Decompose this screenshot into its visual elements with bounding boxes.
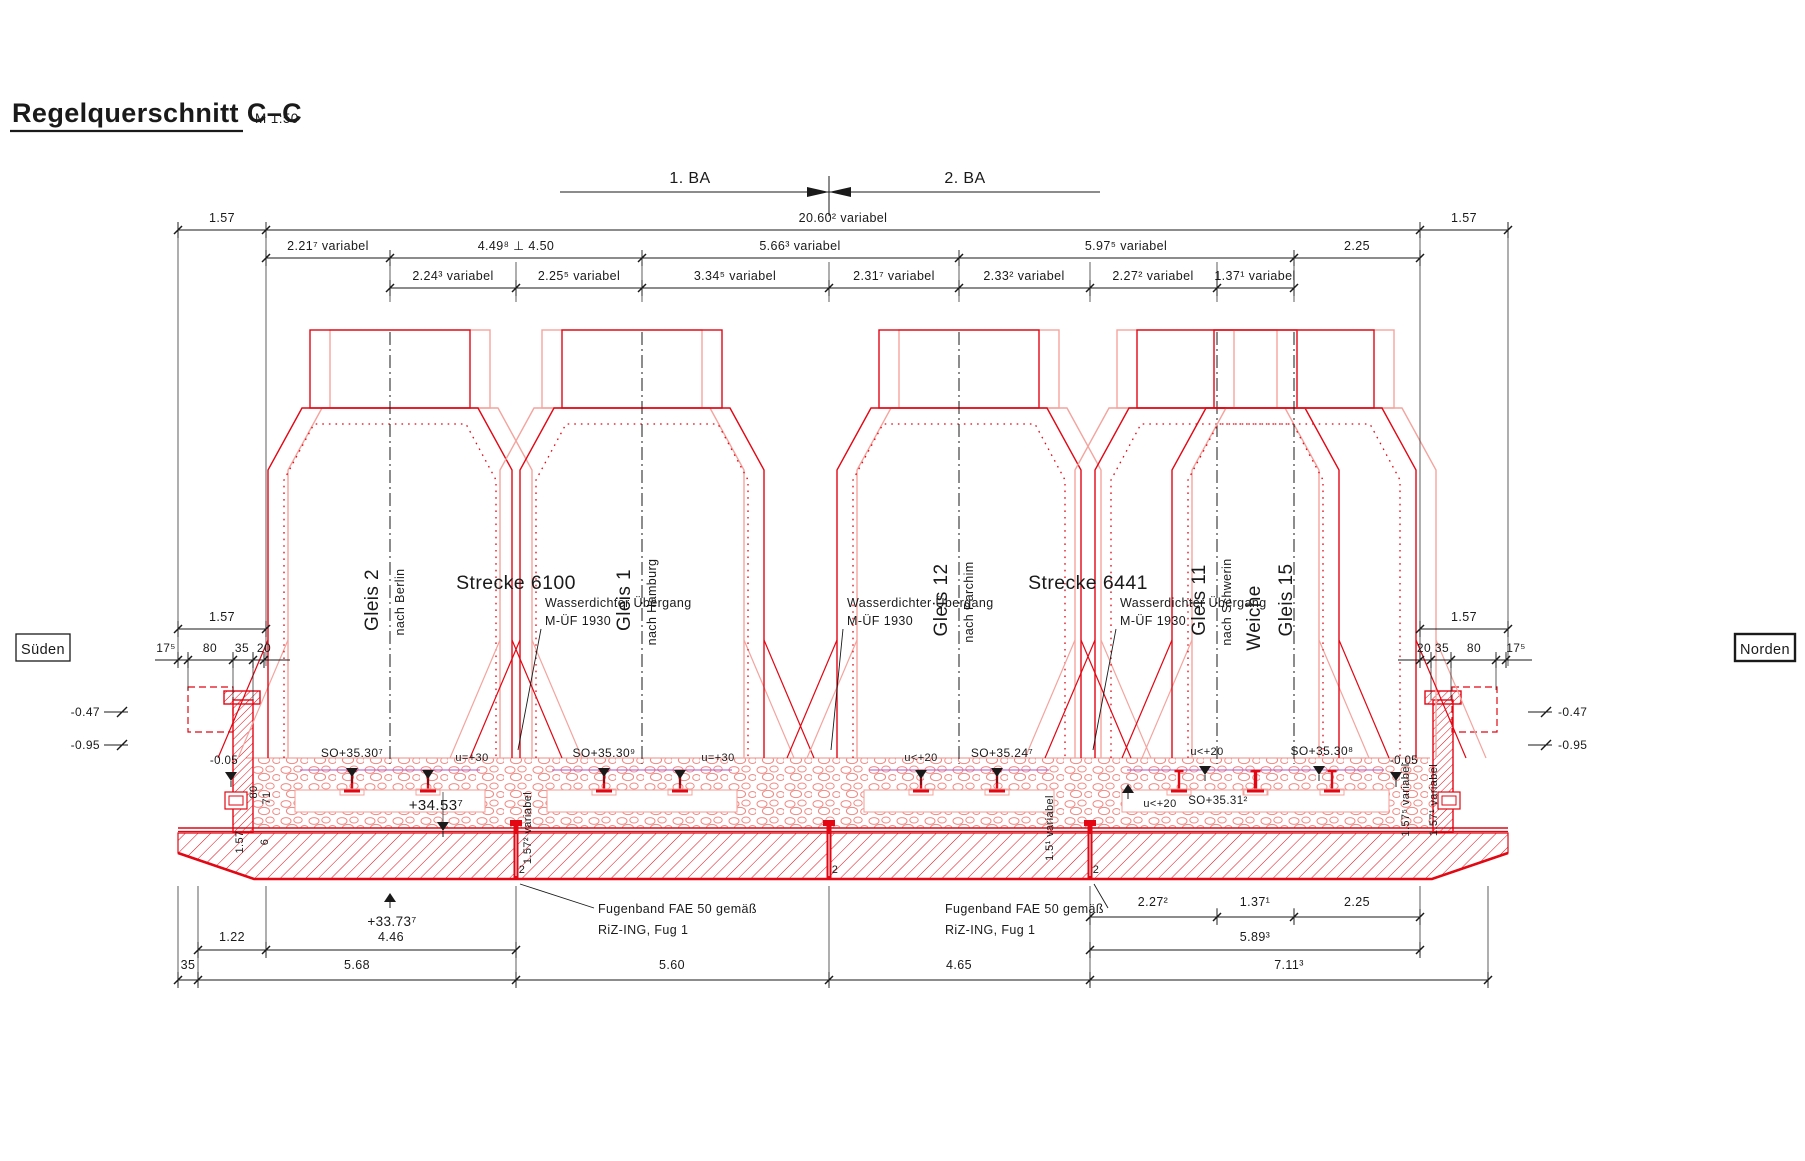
- waterproof-note: M-ÜF 1930: [1120, 614, 1186, 628]
- slab-hatched-body: [178, 833, 1508, 879]
- sleeper-band: [864, 790, 1054, 812]
- track-direction-label: nach Berlin: [393, 569, 407, 636]
- slab-level-label: +33.73⁷: [367, 914, 416, 929]
- dim-label: 2.25: [1344, 239, 1370, 253]
- cross-section-drawing: Regelquerschnitt C–CM 1:501. BA2. BA1.57…: [0, 0, 1805, 1161]
- dim-label: 20.60² variabel: [799, 211, 888, 225]
- gauge-variant-outline: [807, 330, 1151, 758]
- height-dim-label: 1.57: [234, 830, 246, 853]
- drawing-scale: M 1:50: [255, 111, 299, 126]
- phase-arrow-left: [807, 187, 829, 197]
- dim-label: 2.25: [1344, 895, 1370, 909]
- waterproof-note: M-ÜF 1930: [847, 614, 913, 628]
- dim-label: 2.21⁷ variabel: [287, 239, 369, 253]
- line-number-label: Strecke 6441: [1028, 572, 1148, 594]
- dim-label: 17⁵: [156, 641, 176, 655]
- clearance-gauges: [218, 330, 1486, 764]
- gauge-variant-outline: [1025, 330, 1369, 758]
- joint-tape-note: Fugenband FAE 50 gemäß: [598, 902, 757, 916]
- cant-label: u=+30: [455, 752, 488, 764]
- level-label: -0.05: [210, 755, 238, 767]
- rail-level-label: SO+35.31²: [1188, 795, 1248, 807]
- cant-label: u<+20: [1190, 746, 1223, 758]
- track-name-label: Gleis 11: [1189, 564, 1210, 636]
- joint-width-label: 2: [1093, 864, 1100, 876]
- dim-label: 1.37¹ variabel: [1214, 269, 1295, 283]
- phase-2-label: 2. BA: [944, 170, 985, 187]
- track-direction-label: nach Parchim: [962, 561, 976, 642]
- rail-level-label: SO+35.30⁷: [321, 746, 383, 760]
- dim-label: 2.31⁷ variabel: [853, 269, 935, 283]
- cant-label: u<+20: [1143, 798, 1176, 810]
- joint-tape-note: RiZ-ING, Fug 1: [945, 923, 1035, 937]
- track-direction-label: nach Hamburg: [645, 559, 659, 646]
- drawing-sheet: Regelquerschnitt C–CM 1:501. BA2. BA1.57…: [0, 0, 1805, 1161]
- level-label: -0.47: [71, 705, 100, 719]
- track-direction-label: nach Schwerin: [1220, 558, 1234, 645]
- rail-level-label: SO+35.30⁹: [572, 746, 635, 760]
- dim-label: 2.27²: [1138, 895, 1169, 909]
- dim-label: 1.22: [219, 930, 245, 944]
- level-label: -0.95: [1558, 738, 1587, 752]
- dim-label: 4.46: [378, 930, 404, 944]
- track-name-label: Gleis 15: [1276, 564, 1297, 637]
- height-dim-label: 6: [259, 839, 271, 846]
- dim-label: 5.68: [344, 958, 370, 972]
- level-label: -0.95: [71, 738, 100, 752]
- dim-label: 1.57: [1451, 610, 1477, 624]
- dim-label: 2.25⁵ variabel: [538, 269, 620, 283]
- phase-1-label: 1. BA: [669, 170, 710, 187]
- dim-label: 1.57: [209, 211, 235, 225]
- joint-height-label: 1.57² variabel: [522, 792, 534, 864]
- dim-label: 80: [203, 641, 217, 655]
- dim-label: 20: [1417, 641, 1431, 655]
- dim-label: 35: [1435, 641, 1449, 655]
- joint-tape-note: RiZ-ING, Fug 1: [598, 923, 688, 937]
- dim-label: 17⁵: [1506, 641, 1526, 655]
- dim-label: 2.33² variabel: [983, 269, 1064, 283]
- joint-width-label: 2: [832, 864, 839, 876]
- rail-level-label: SO+35.30⁸: [1290, 744, 1353, 758]
- dim-label: 5.66³ variabel: [759, 239, 840, 253]
- level-marker-up: [384, 893, 396, 902]
- dim-label: 35: [235, 641, 249, 655]
- sleeper-band: [547, 790, 737, 812]
- joint-height-label: 1.57⁵ variabel: [1400, 763, 1412, 836]
- dim-label: 1.57: [1451, 211, 1477, 225]
- dim-label: 35: [181, 958, 196, 972]
- waterproof-note: M-ÜF 1930: [545, 614, 611, 628]
- dim-label: 80: [1467, 641, 1481, 655]
- dim-label: 5.97⁵ variabel: [1085, 239, 1167, 253]
- track-name-label: Gleis 1: [614, 569, 635, 631]
- dim-label: 1.37¹: [1240, 895, 1271, 909]
- north-label: Norden: [1740, 642, 1790, 658]
- ballast-level-label: +34.53⁷: [409, 797, 464, 814]
- height-dim-label: 80: [248, 785, 260, 798]
- dim-label: 5.60: [659, 958, 685, 972]
- dim-label: 2.27² variabel: [1112, 269, 1193, 283]
- switch-label: Weiche: [1244, 585, 1265, 650]
- joint-width-label: 2: [519, 864, 526, 876]
- joint-height-label: 1.57¹ variabel: [1428, 764, 1440, 836]
- level-label: -0.47: [1558, 705, 1587, 719]
- south-label: Süden: [21, 642, 65, 658]
- dim-label: 3.34⁵ variabel: [694, 269, 776, 283]
- dim-label: 1.57: [209, 610, 235, 624]
- line-number-label: Strecke 6100: [456, 572, 576, 594]
- deck-slab: [178, 828, 1508, 879]
- phase-arrow-right: [829, 187, 851, 197]
- dim-label: 5.89³: [1240, 930, 1271, 944]
- cant-label: u<+20: [904, 752, 937, 764]
- dim-label: 2.24³ variabel: [412, 269, 493, 283]
- track-name-label: Gleis 2: [362, 569, 383, 631]
- rail-level-label: SO+35.24⁷: [971, 746, 1033, 760]
- dim-label: 7.11³: [1274, 958, 1304, 972]
- track-name-label: Gleis 12: [931, 564, 952, 637]
- dim-label: 20: [257, 641, 271, 655]
- cant-label: u=+30: [701, 752, 734, 764]
- joint-tape-note: Fugenband FAE 50 gemäß: [945, 902, 1104, 916]
- gauge-variant-outline: [450, 330, 794, 758]
- gauge-variant-outline: [238, 330, 582, 758]
- dim-label: 4.49⁸ ⊥ 4.50: [478, 239, 555, 253]
- height-dim-label: 71: [261, 791, 273, 804]
- dim-label: 4.65: [946, 958, 972, 972]
- joint-height-label: 1.5¹ variabel: [1044, 795, 1056, 861]
